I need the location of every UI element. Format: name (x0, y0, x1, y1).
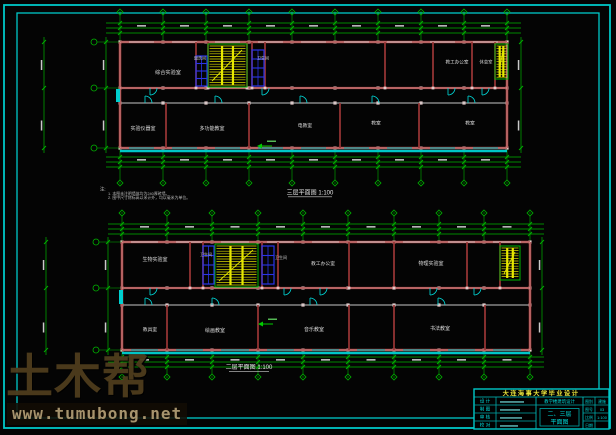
title-block: 大连海事大学毕业设计 设 计 制 图 审 核 校 对 教学楼建筑设计 二、三层 … (474, 389, 609, 429)
room-label: 教工办公室 (446, 59, 469, 66)
note-line: 2. 图中尺寸除标高以米计外，均以毫米为单位。 (108, 195, 190, 200)
room-label: 实验仪器室 (130, 125, 155, 132)
room-label: 教具室 (143, 326, 158, 333)
titleblock-field-label: 设 计 (480, 398, 491, 405)
titleblock-cell: 建施 (598, 399, 606, 404)
room-label: 音乐教室 (304, 326, 324, 333)
room-label: 教室 (465, 120, 475, 127)
titleblock-project-name: 教学楼建筑设计 (544, 398, 575, 405)
plan-caption: 三层平面图 1:100 (287, 190, 334, 197)
titleblock-field-label: 审 核 (480, 414, 491, 421)
titleblock-cell: 日期 (585, 423, 593, 428)
titleblock-field-label: 制 图 (480, 406, 491, 413)
drawing-title: 平面图 (550, 419, 568, 426)
room-label: 综合实验室 (155, 68, 181, 76)
titleblock-cell: 图别 (585, 399, 593, 404)
upper-plan-labels: 综合实验室 盥洗间 卫生间 教工办公室 休息室 实验仪器室 多功能教室 电教室 … (100, 55, 493, 201)
titleblock-field-label: 校 对 (480, 422, 491, 429)
room-label: 生物实验室 (142, 256, 167, 263)
watermark-brand: 土木帮 (6, 354, 150, 401)
room-label: 电教室 (298, 122, 313, 129)
cad-sheet: 综合实验室 盥洗间 卫生间 教工办公室 休息室 实验仪器室 多功能教室 电教室 … (0, 0, 616, 435)
room-label: 休息室 (480, 59, 494, 66)
plan-caption: 二层平面图 1:100 (226, 364, 273, 371)
room-label: 物理实验室 (418, 260, 443, 267)
room-label: 教工办公室 (311, 260, 335, 267)
room-label: 卫生间 (257, 55, 269, 61)
notes-heading: 注: (100, 186, 106, 193)
room-label: 盥洗间 (194, 55, 206, 61)
room-label: 教室 (371, 120, 381, 127)
room-label: 多功能教室 (199, 125, 224, 132)
room-label: 卫生间 (275, 254, 287, 260)
room-label: 书法教室 (430, 325, 450, 332)
room-label: 卫生间 (200, 251, 212, 257)
titleblock-cell: 比例 (585, 415, 593, 420)
drawing-title: 二、三层 (547, 411, 571, 418)
titleblock-project-header: 大连海事大学毕业设计 (503, 390, 580, 398)
watermark-url: www.tumubong.net (7, 403, 187, 425)
titleblock-cell: 03 (600, 407, 604, 412)
titleblock-cell: 1:100 (597, 415, 608, 420)
titleblock-cell: 图号 (585, 407, 593, 412)
room-label: 绘画教室 (205, 327, 225, 334)
